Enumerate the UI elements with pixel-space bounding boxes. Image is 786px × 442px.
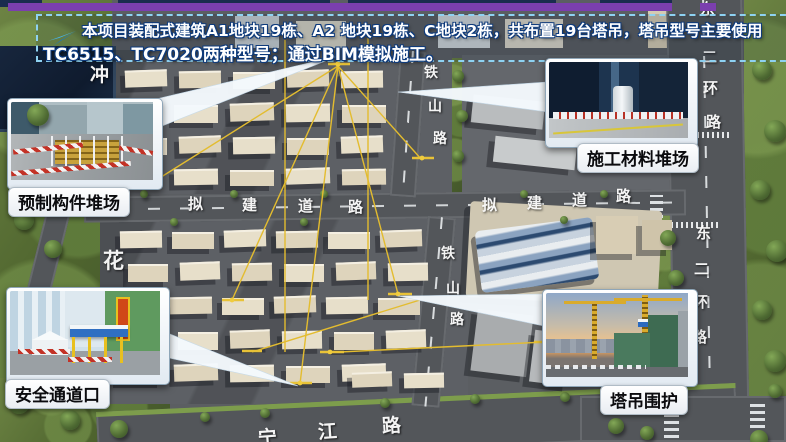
building	[87, 102, 123, 134]
safety-passage-photo	[10, 291, 166, 381]
inset-material-yard	[545, 58, 698, 148]
header-line1: 本项目装配式建筑A1地块19栋、A2 地块19栋、C地块2栋，共布置19台塔吊，…	[82, 19, 762, 41]
fence-row	[553, 112, 683, 119]
material-yard-photo	[549, 62, 694, 144]
city-silhouette	[546, 339, 618, 353]
tree	[27, 104, 49, 126]
barrier	[68, 357, 112, 362]
barrier	[18, 349, 70, 354]
fence-row	[546, 365, 646, 369]
crane-mast	[592, 301, 597, 359]
inset-crane-enclosure	[542, 289, 698, 387]
inset-precast-yard	[7, 98, 163, 190]
crane-jib	[564, 301, 626, 304]
inset-safety-passage	[6, 287, 170, 385]
construction-site-slide: 拟 建 道 路 拟 建 道 路 铁 山 路 铁 山 路 东 二 环 路 东 二 …	[0, 0, 786, 442]
crane-jib	[614, 298, 682, 301]
tent-roof	[32, 331, 68, 340]
header-text-box: 本项目装配式建筑A1地块19栋、A2 地块19栋、C地块2栋，共布置19台塔吊，…	[36, 14, 786, 62]
building	[123, 104, 153, 134]
label-material-yard: 施工材料堆场	[577, 143, 699, 173]
crane-enclosure-photo	[546, 293, 694, 383]
label-safety-passage: 安全通道口	[5, 379, 110, 409]
header-line2: TC6515、TC7020两种型号；通过BIM模拟施工。	[43, 40, 443, 65]
label-precast-yard: 预制构件堆场	[8, 187, 130, 217]
canopy-roof	[70, 325, 128, 337]
precast-yard-photo	[11, 102, 159, 186]
label-crane-enclosure: 塔吊围护	[600, 385, 688, 415]
